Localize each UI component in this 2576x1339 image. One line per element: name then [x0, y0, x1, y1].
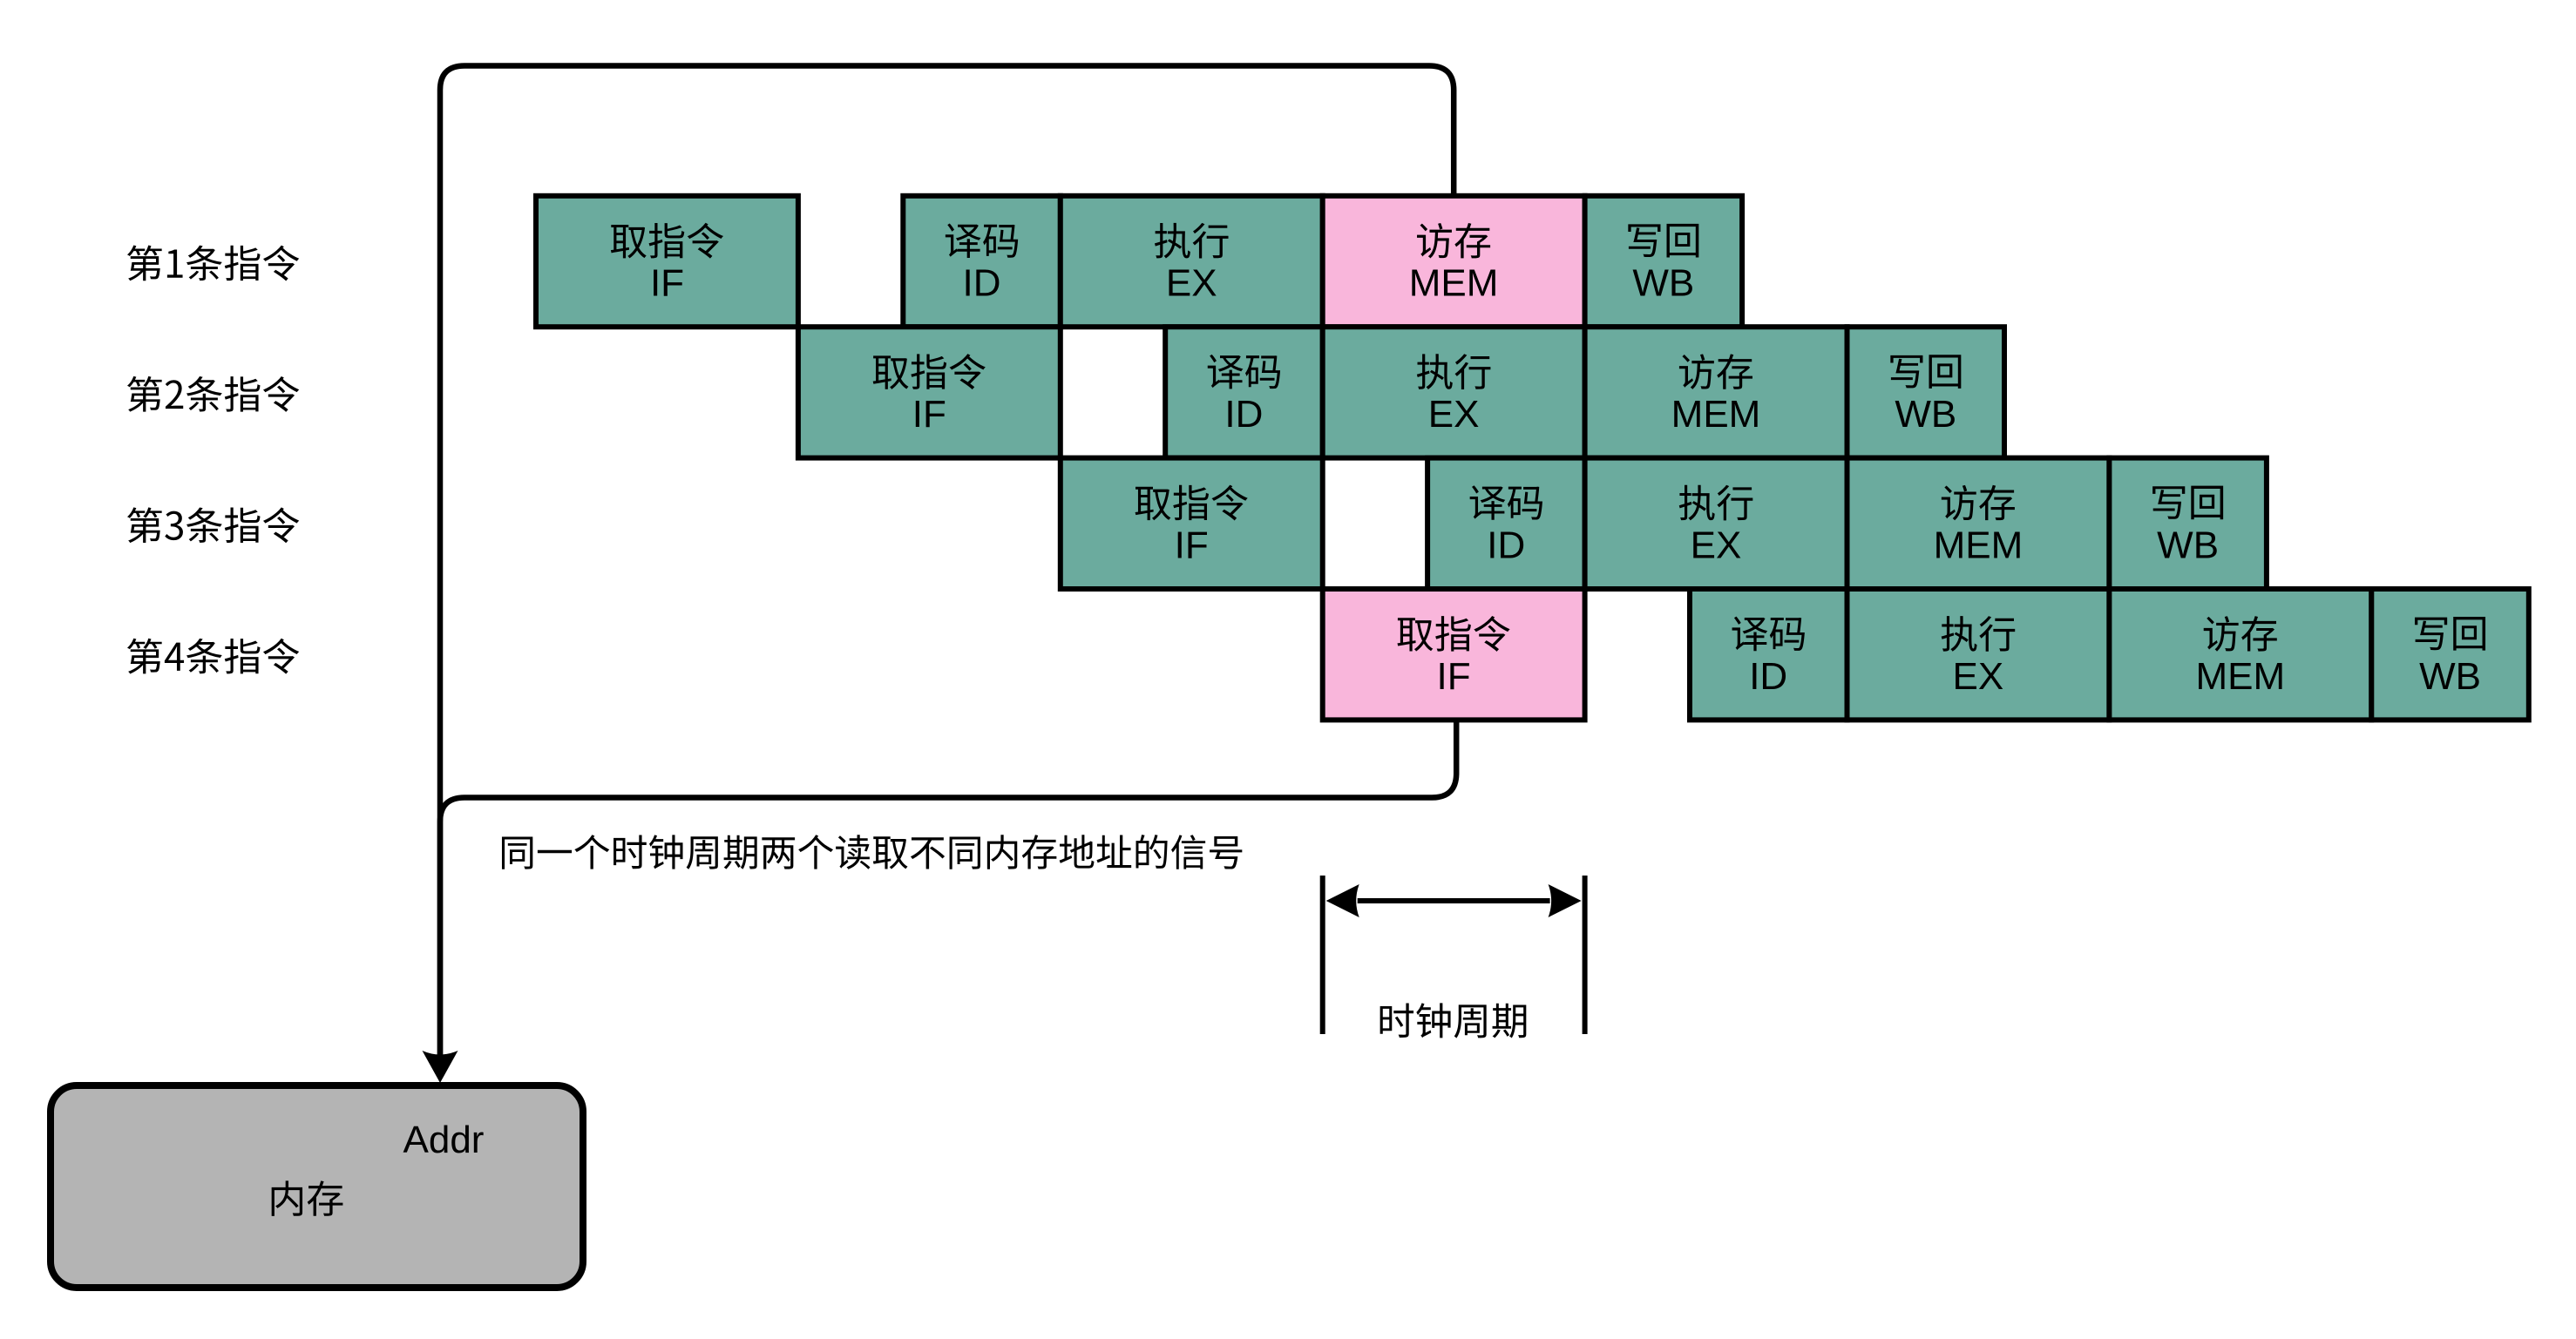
svg-text:Addr: Addr [403, 1119, 485, 1161]
